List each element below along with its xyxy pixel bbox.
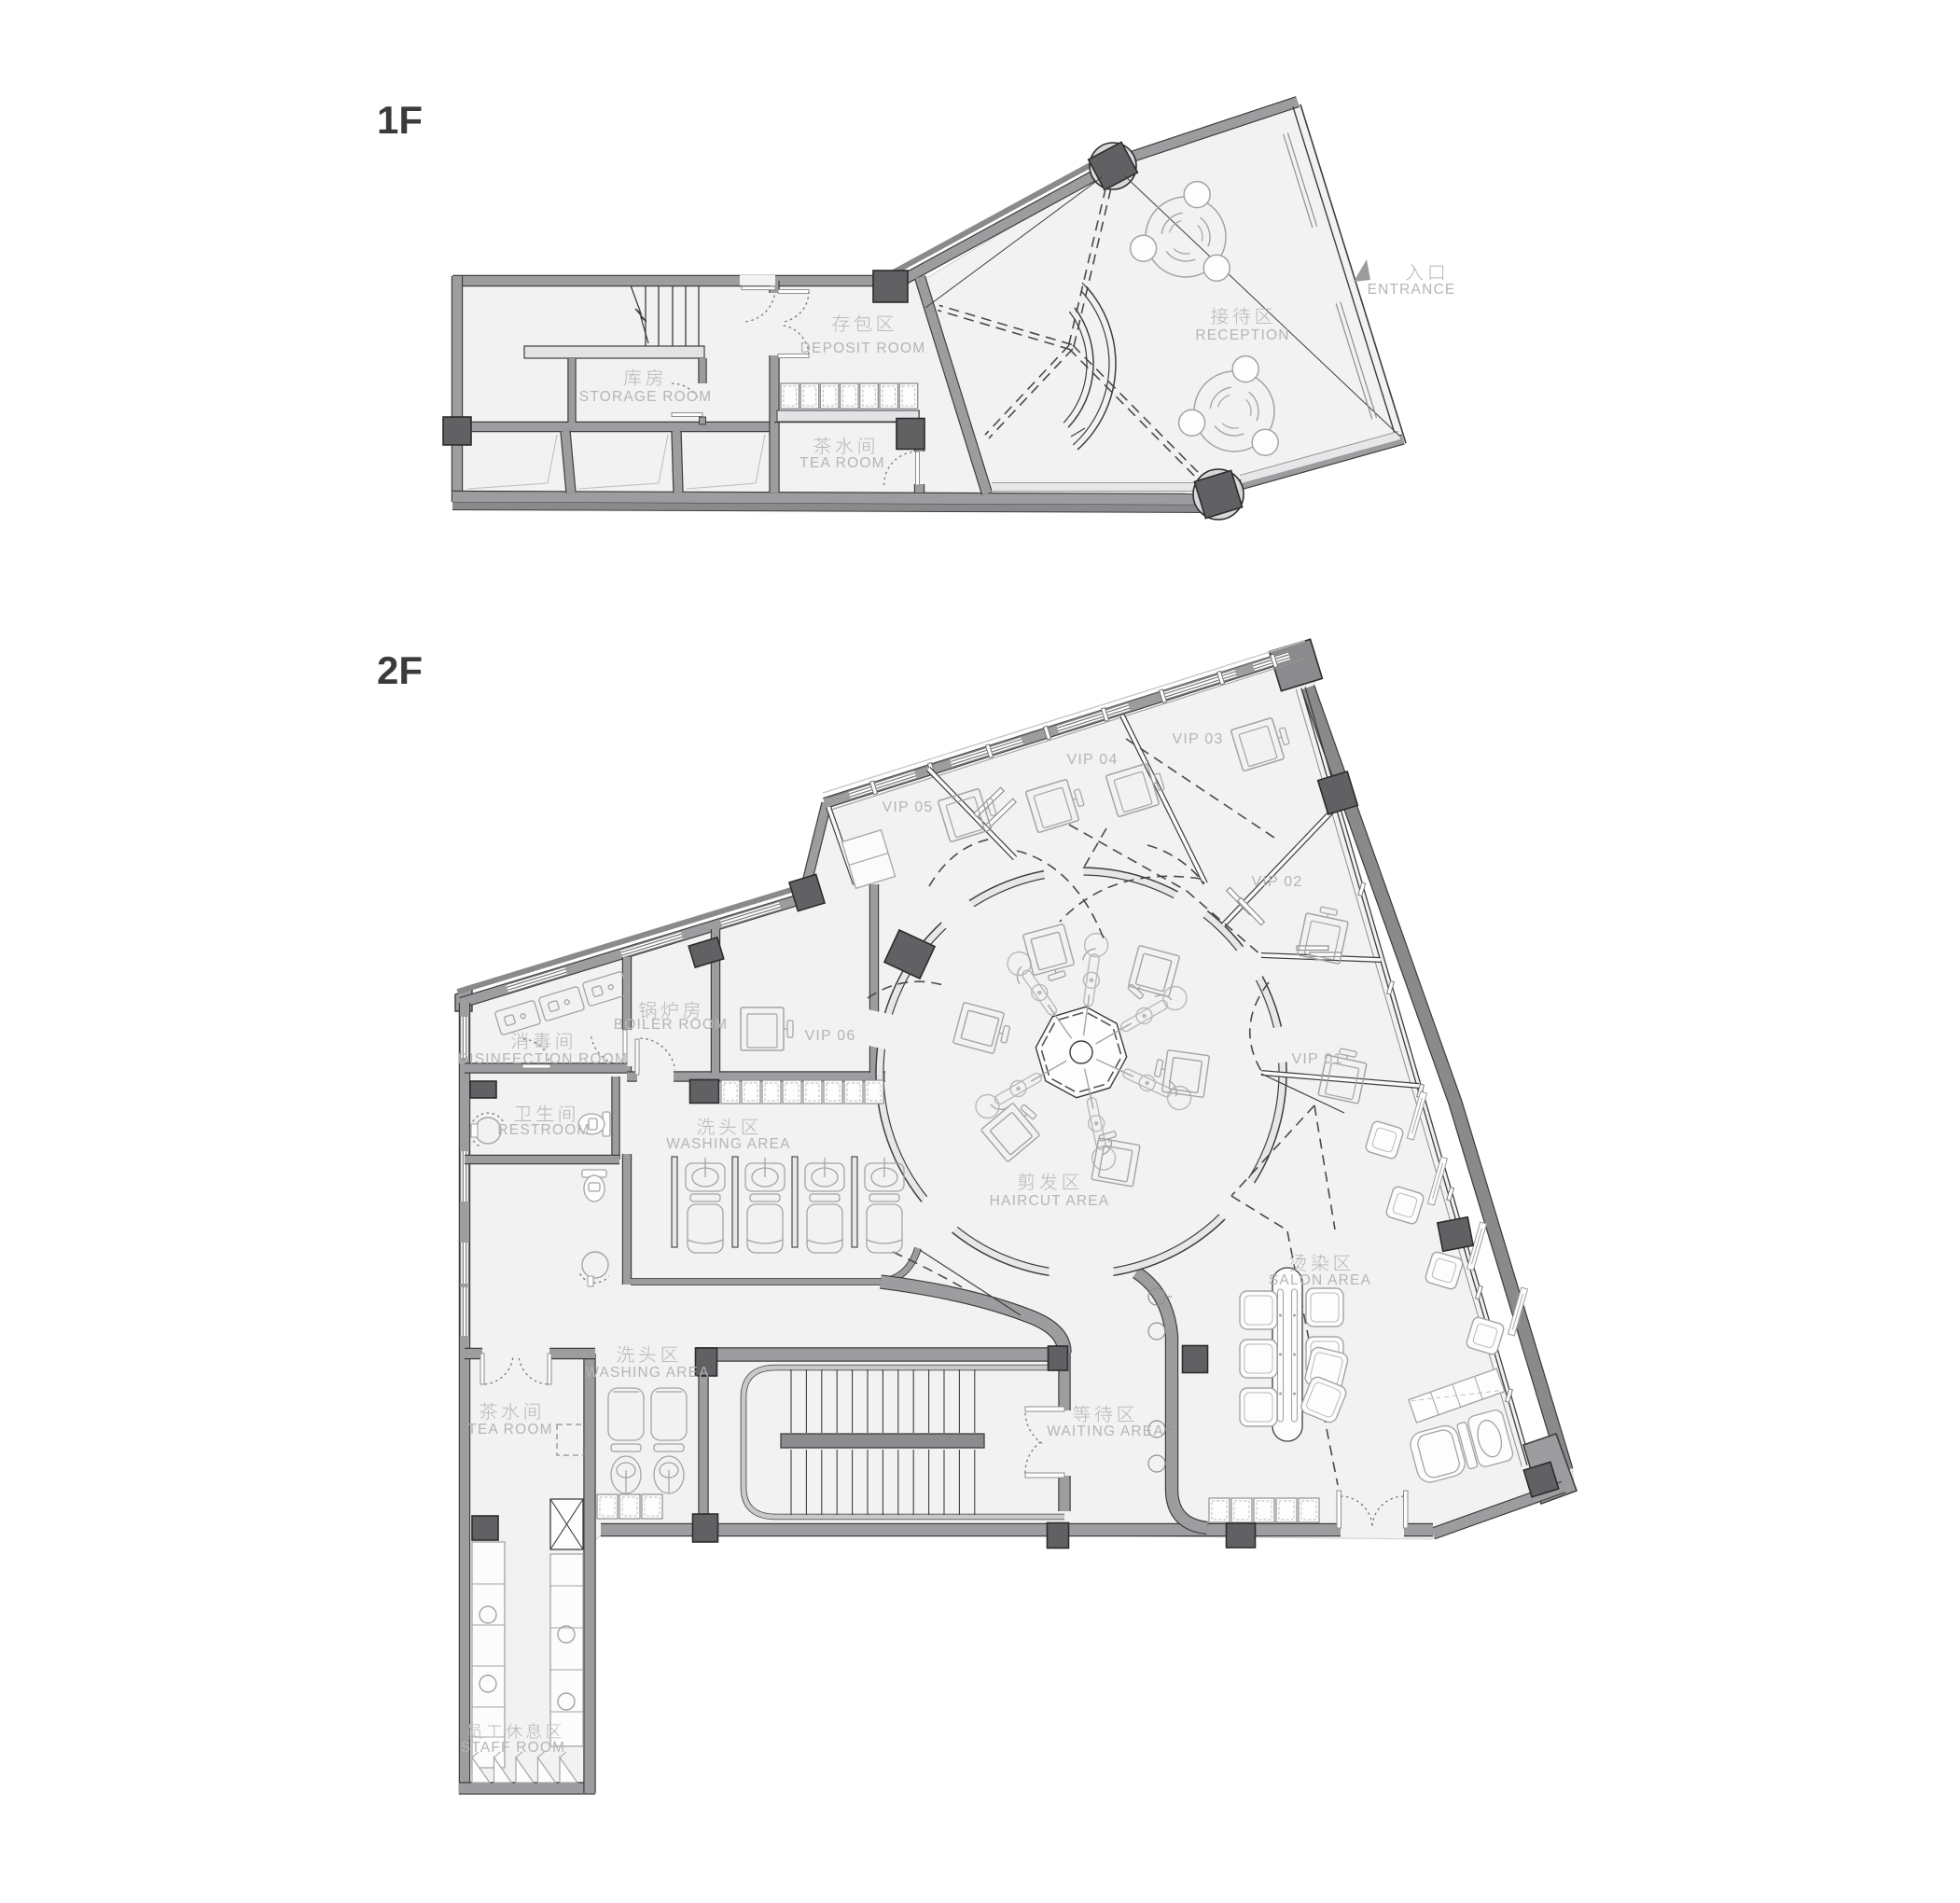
svg-text:1F: 1F	[377, 98, 423, 142]
svg-text:WASHING AREA: WASHING AREA	[666, 1136, 791, 1152]
svg-text:VIP 06: VIP 06	[805, 1028, 856, 1044]
svg-text:VIP 01: VIP 01	[1292, 1051, 1343, 1067]
svg-text:TEA ROOM: TEA ROOM	[799, 455, 884, 471]
svg-text:WASHING AREA: WASHING AREA	[585, 1365, 710, 1381]
svg-text:DISINFECTION ROOM: DISINFECTION ROOM	[458, 1051, 628, 1067]
svg-text:VIP 04: VIP 04	[1067, 752, 1119, 768]
svg-text:WAITING AREA: WAITING AREA	[1047, 1424, 1164, 1439]
svg-text:2F: 2F	[377, 648, 423, 692]
svg-text:SALON AREA: SALON AREA	[1269, 1272, 1371, 1288]
svg-text:STORAGE ROOM: STORAGE ROOM	[579, 389, 712, 405]
svg-text:STAFF ROOM: STAFF ROOM	[461, 1740, 565, 1756]
svg-text:RECEPTION: RECEPTION	[1195, 327, 1289, 343]
svg-text:BOILER ROOM: BOILER ROOM	[614, 1017, 729, 1033]
svg-text:VIP 05: VIP 05	[883, 799, 934, 815]
svg-text:DEPOSIT ROOM: DEPOSIT ROOM	[800, 340, 926, 356]
svg-text:ENTRANCE: ENTRANCE	[1368, 282, 1456, 298]
svg-text:HAIRCUT AREA: HAIRCUT AREA	[990, 1193, 1110, 1209]
svg-text:TEA ROOM: TEA ROOM	[467, 1422, 552, 1438]
svg-text:VIP 02: VIP 02	[1252, 874, 1303, 890]
svg-text:VIP 03: VIP 03	[1173, 731, 1224, 747]
svg-text:RESTROOM: RESTROOM	[497, 1122, 590, 1138]
